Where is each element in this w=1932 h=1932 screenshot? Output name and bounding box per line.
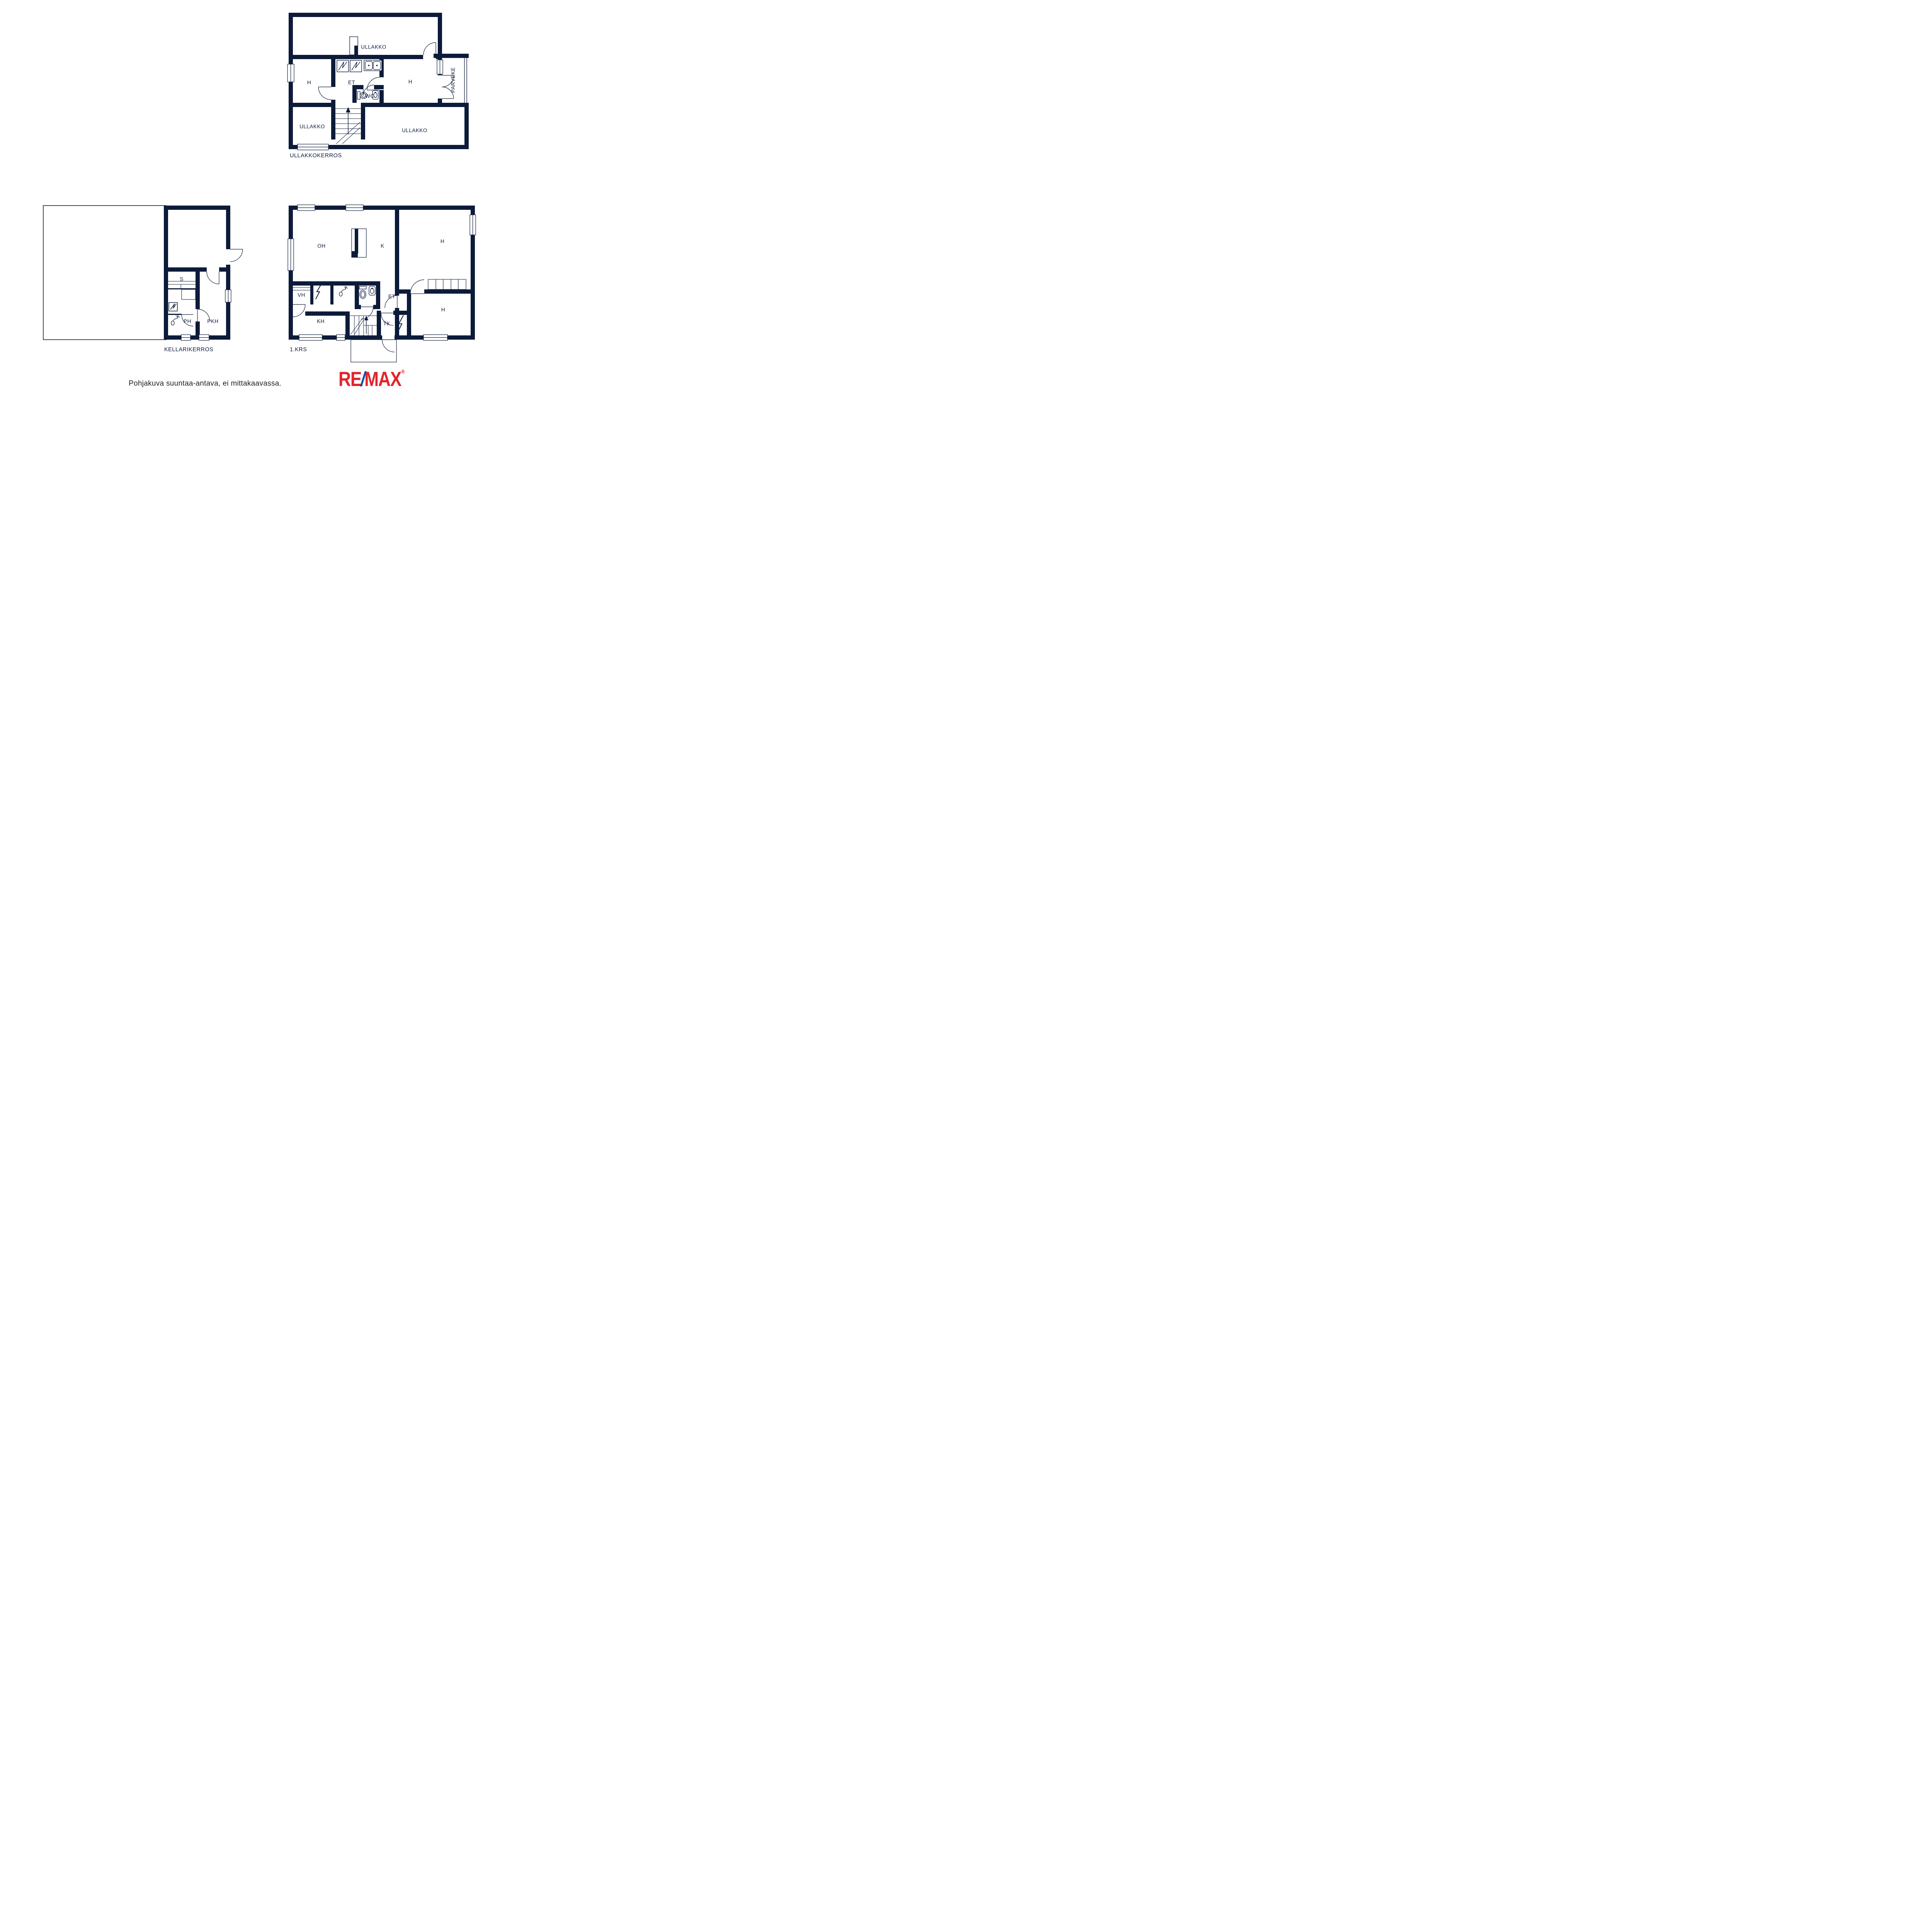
attic-plan: ULLAKKO H ET WC H PARVEKE ULLAKKO ULLAKK… (287, 13, 469, 159)
basement-walls (164, 206, 230, 340)
window (298, 205, 315, 211)
floorplan-page: ULLAKKO H ET WC H PARVEKE ULLAKKO ULLAKK… (0, 0, 565, 399)
first-floor-stairs (350, 316, 377, 335)
room-label-k: K (381, 243, 384, 249)
window (423, 335, 447, 340)
first-floor-plan: OH K H VH ET KH TK H 1.KRS (288, 205, 476, 362)
flue-icon (350, 60, 362, 72)
room-label-h-right: H (408, 79, 412, 85)
room-label-pkh: PKH (207, 318, 218, 324)
sink-icon (369, 286, 375, 295)
room-label-h-top-right: H (440, 238, 444, 244)
sauna-benches (168, 281, 196, 288)
double-sink-icon (364, 60, 382, 71)
vh-shelves (293, 287, 310, 290)
room-label-wc: WC (365, 93, 374, 99)
window (287, 64, 294, 82)
wardrobe (428, 279, 466, 289)
shower-icon (339, 286, 348, 296)
room-label-tk: TK (383, 321, 390, 327)
room-label-ullakko-top: ULLAKKO (361, 44, 386, 50)
room-label-vh: VH (298, 292, 305, 298)
attic-doors (318, 43, 454, 100)
window (337, 335, 345, 340)
room-label-ullakko-bl: ULLAKKO (299, 124, 325, 129)
room-label-ph: PH (184, 318, 191, 324)
attic-title: ULLAKKOKERROS (290, 153, 342, 159)
basement-title: KELLARIKERROS (164, 347, 213, 353)
chimney (350, 37, 358, 55)
basement-plan: S PH PKH KELLARIKERROS (43, 206, 243, 353)
room-label-kh: KH (317, 318, 325, 324)
first-floor-title: 1.KRS (290, 347, 307, 353)
balcony-railing (464, 58, 467, 103)
room-label-s: S (180, 276, 184, 282)
unexcavated-area (43, 206, 166, 340)
basement-niche (182, 289, 196, 299)
fireplace (352, 229, 366, 257)
window (181, 335, 190, 340)
room-label-oh: OH (317, 243, 325, 249)
toilet-icon (359, 286, 366, 299)
room-label-et: ET (348, 80, 355, 85)
floorplan-canvas: ULLAKKO H ET WC H PARVEKE ULLAKKO ULLAKK… (0, 0, 565, 399)
basement-doors (182, 249, 243, 326)
room-label-h-left: H (307, 80, 311, 85)
window (299, 335, 322, 340)
first-floor-windows (288, 205, 476, 340)
window (298, 144, 328, 150)
window (437, 60, 443, 74)
remax-logo-max: MAX (364, 368, 401, 391)
shower-icon (171, 315, 180, 325)
remax-logo-registered: ® (401, 369, 405, 375)
window (199, 335, 209, 340)
window (346, 205, 363, 211)
window (470, 215, 476, 235)
room-label-ullakko-br: ULLAKKO (402, 128, 427, 133)
room-label-parveke: PARVEKE (450, 67, 456, 93)
remax-logo: RE/MAX® (338, 369, 405, 389)
window (225, 290, 231, 302)
disclaimer-text: Pohjakuva suuntaa-antava, ei mittakaavas… (129, 379, 281, 388)
room-label-h-bottom-right: H (441, 307, 445, 313)
room-label-et-first: ET (388, 294, 395, 299)
window (288, 239, 294, 270)
electrical-bolt-icon (316, 284, 321, 299)
stairs-up-arrow (346, 107, 350, 134)
heater-icon (169, 303, 177, 311)
remax-logo-re: RE (338, 368, 361, 391)
flue-icon (337, 60, 349, 72)
